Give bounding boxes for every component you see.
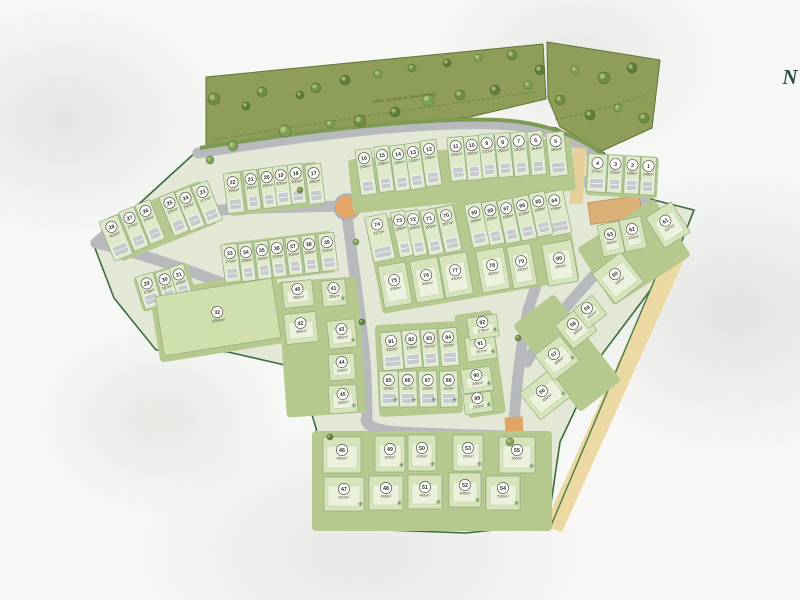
plot-area-label: 530m²	[497, 494, 509, 499]
plot-number: 17	[310, 171, 317, 178]
plot-41[interactable]: 41205m²✳	[321, 279, 348, 307]
plot-number: 53	[465, 446, 471, 452]
plot-2[interactable]: 2188m²	[624, 156, 641, 195]
tree-highlight	[409, 65, 413, 69]
plot-area-label: 325m²	[338, 399, 350, 405]
plot-number: 15	[379, 153, 386, 160]
plot-number: 82	[408, 337, 414, 343]
plot-4[interactable]: 4370m²	[587, 154, 608, 193]
tree-highlight	[572, 67, 576, 71]
plot-54[interactable]: 54530m²✳	[486, 476, 520, 510]
plot-number: 55	[514, 448, 520, 454]
plot-area-label: 500m²	[511, 456, 523, 461]
tree-highlight	[327, 121, 331, 125]
plot-number: 88	[446, 378, 452, 384]
plot-47[interactable]: 47510m²✳	[324, 477, 364, 511]
plot-number: 33	[227, 251, 234, 258]
plot-number: 21	[247, 177, 254, 184]
tree-highlight	[628, 64, 633, 69]
plot-43[interactable]: 43352m²✳	[327, 319, 358, 350]
plot-number: 86	[405, 378, 411, 384]
garden-tree-icon: ✳	[475, 497, 481, 505]
plot-number: 3	[614, 162, 617, 168]
tree-highlight	[556, 96, 561, 101]
plot-number: 13	[410, 150, 417, 157]
plot-55[interactable]: 55500m²✳	[499, 437, 535, 473]
plot-84[interactable]: 84294m²	[438, 327, 459, 366]
plot-area-label: 445m²	[459, 491, 471, 496]
plot-number: 12	[426, 147, 433, 154]
plot-40[interactable]: 40350m²	[282, 280, 315, 309]
plot-number: 41	[330, 286, 337, 293]
plot-number: 80	[556, 255, 563, 262]
garden-tree-icon: ✳	[485, 401, 492, 410]
tree-highlight	[507, 439, 511, 443]
tree-highlight	[298, 188, 301, 191]
plot-46[interactable]: 46480m²	[323, 437, 361, 473]
plot-number: 19	[277, 173, 284, 180]
plot-number: 14	[395, 152, 402, 159]
garden-tree-icon: ✳	[397, 500, 403, 508]
plot-number: 36	[274, 246, 281, 253]
plot-86[interactable]: 86227m²✳	[398, 371, 417, 408]
plot-number: 42	[297, 321, 304, 328]
plot-number: 10	[468, 143, 475, 150]
garden-tree-icon: ✳	[350, 336, 357, 345]
plot-number: 11	[453, 144, 459, 151]
garden-tree-icon: ✳	[491, 325, 498, 334]
plot-number: 52	[462, 483, 468, 489]
garden-tree-icon: ✳	[490, 347, 497, 356]
plot-50[interactable]: 50420m²✳	[408, 435, 436, 471]
tree-highlight	[391, 108, 396, 113]
tree-highlight	[210, 95, 215, 100]
tree-highlight	[444, 60, 448, 64]
plot-area-label: 337m²	[424, 343, 436, 349]
plot-number: 39	[324, 240, 331, 247]
garden-tree-icon: ✳	[529, 463, 535, 471]
plot-number: 18	[292, 171, 299, 178]
plot-number: 16	[361, 156, 368, 163]
tree-highlight	[328, 435, 331, 438]
plot-number: 84	[445, 335, 451, 341]
tree-highlight	[354, 240, 357, 243]
plot-number: 35	[259, 248, 266, 255]
tree-highlight	[356, 117, 361, 122]
tree-highlight	[516, 336, 519, 339]
garden-tree-icon: ✳	[436, 499, 442, 507]
plot-52[interactable]: 52445m²✳	[449, 473, 481, 507]
plot-number: 47	[341, 487, 347, 493]
plot-number: 20	[263, 175, 270, 182]
plot-number: 50	[419, 446, 425, 452]
plot-number: 83	[426, 336, 432, 342]
garden-tree-icon: ✳	[392, 396, 398, 404]
garden-tree-icon: ✳	[514, 500, 520, 508]
plot-81[interactable]: 81522m²	[380, 331, 404, 371]
plot-area-label: 522m²	[386, 346, 398, 352]
plot-number: 90	[473, 373, 480, 380]
plot-number: 81	[388, 339, 394, 345]
tree-highlight	[258, 88, 263, 93]
tree-highlight	[536, 66, 541, 71]
garden-tree-icon: ✳	[431, 396, 437, 404]
garden-tree-icon: ✳	[351, 402, 358, 410]
plot-number: 1	[647, 164, 650, 170]
garden-tree-icon: ✳	[399, 462, 405, 470]
plot-number: 34	[243, 250, 250, 257]
plot-90[interactable]: 90306m²✳	[460, 366, 493, 394]
plot-44[interactable]: 44243m²	[328, 353, 356, 381]
tree-highlight	[281, 127, 286, 132]
plot-area-label: 243m²	[337, 367, 349, 373]
plot-number: 76	[423, 272, 430, 279]
plot-number: 48	[383, 486, 389, 492]
garden-tree-icon: ✳	[358, 501, 364, 509]
plot-number: 87	[425, 378, 431, 384]
plot-number: 46	[339, 448, 345, 454]
plot-number: 92	[479, 320, 486, 327]
plot-number: 54	[500, 486, 506, 492]
tree-highlight	[360, 320, 363, 323]
plot-number: 45	[340, 392, 346, 398]
plot-number: 32	[214, 310, 221, 317]
tree-highlight	[312, 84, 317, 89]
plot-53[interactable]: 53320m²✳	[453, 435, 483, 471]
tree-highlight	[640, 114, 645, 119]
plot-area-label: 227m²	[402, 385, 414, 390]
plot-area-label: 324m²	[383, 385, 395, 390]
plot-area-label: 205m²	[609, 169, 621, 175]
plot-area-label: 325m²	[384, 455, 396, 460]
paved-patch	[505, 417, 524, 434]
plot-area-label: 188m²	[626, 170, 638, 176]
plot-number: 77	[452, 267, 459, 274]
tree-highlight	[615, 105, 619, 109]
plot-area-label: 320m²	[462, 454, 474, 459]
garden-tree-icon: ✳	[477, 461, 483, 469]
plot-48[interactable]: 48460m²✳	[369, 476, 403, 510]
plot-89[interactable]: 89243m²✳	[463, 391, 494, 415]
plot-85[interactable]: 85324m²✳	[379, 371, 399, 408]
plot-number: 49	[387, 447, 393, 453]
plot-area-label: 465m²	[419, 493, 431, 498]
plot-area-label: 510m²	[338, 495, 350, 500]
plot-area-label: 420m²	[416, 454, 428, 459]
plot-number: 4	[596, 161, 599, 167]
tree-highlight	[508, 51, 513, 56]
tree-highlight	[586, 111, 591, 116]
plot-number: 38	[306, 242, 313, 249]
plot-number: 75	[391, 277, 398, 284]
plot-area-label: 250m²	[422, 385, 434, 390]
tree-highlight	[341, 76, 346, 81]
plot-92[interactable]: 92278m²✳	[467, 314, 500, 340]
plot-51[interactable]: 51465m²✳	[408, 475, 442, 509]
plot-area-label: 248m²	[642, 171, 654, 177]
masterplan-canvas: 1248m²2188m²3205m²4370m²5265m²6184m²7190…	[0, 0, 800, 600]
site-plan: 1248m²2188m²3205m²4370m²5265m²6184m²7190…	[0, 0, 800, 600]
garden-tree-icon: ✳	[430, 461, 436, 469]
plot-number: 2	[631, 163, 634, 169]
plot-number: 22	[229, 180, 236, 187]
garden-tree-icon: ✳	[340, 294, 347, 303]
plot-number: 51	[422, 485, 428, 491]
plot-area-label: 460m²	[380, 494, 392, 499]
plot-area-label: 480m²	[336, 456, 348, 461]
plot-49[interactable]: 49325m²✳	[375, 436, 405, 472]
plot-82[interactable]: 82236m²	[401, 329, 422, 368]
plot-1[interactable]: 1248m²	[640, 157, 657, 196]
tree-highlight	[525, 82, 529, 86]
tree-highlight	[229, 142, 234, 147]
tree-highlight	[375, 71, 379, 75]
tree-highlight	[243, 103, 247, 107]
plot-87[interactable]: 87250m²✳	[418, 371, 437, 408]
plot-42[interactable]: 42465m²	[284, 311, 319, 344]
garden-tree-icon: ✳	[411, 396, 417, 404]
plot-number: 43	[338, 327, 345, 334]
plot-3[interactable]: 3205m²	[607, 155, 624, 194]
plot-area-label: 263m²	[443, 385, 455, 390]
plot-number: 40	[294, 287, 301, 294]
plot-number: 37	[290, 244, 297, 251]
tree-highlight	[600, 74, 605, 79]
north-indicator: N	[781, 65, 798, 89]
plot-number: 78	[489, 262, 496, 269]
garden-tree-icon: ✳	[452, 396, 458, 404]
plot-area-label: 370m²	[591, 168, 603, 174]
plot-88[interactable]: 88263m²✳	[439, 371, 458, 408]
tree-highlight	[297, 92, 301, 96]
tree-highlight	[207, 157, 211, 161]
plot-number: 79	[518, 258, 525, 265]
plot-83[interactable]: 83337m²	[420, 328, 439, 367]
plot-45[interactable]: 45325m²✳	[328, 384, 358, 414]
tree-highlight	[456, 91, 461, 96]
plot-number: 44	[339, 360, 345, 366]
plot-area-label: 294m²	[443, 342, 455, 348]
tree-highlight	[491, 86, 496, 91]
plot-area-label: 236m²	[406, 344, 418, 350]
plot-number: 85	[386, 378, 392, 384]
garden-tree-icon: ✳	[486, 379, 493, 388]
plot-number: 89	[474, 396, 481, 403]
plot-number: 91	[477, 341, 484, 348]
tree-highlight	[475, 55, 479, 59]
